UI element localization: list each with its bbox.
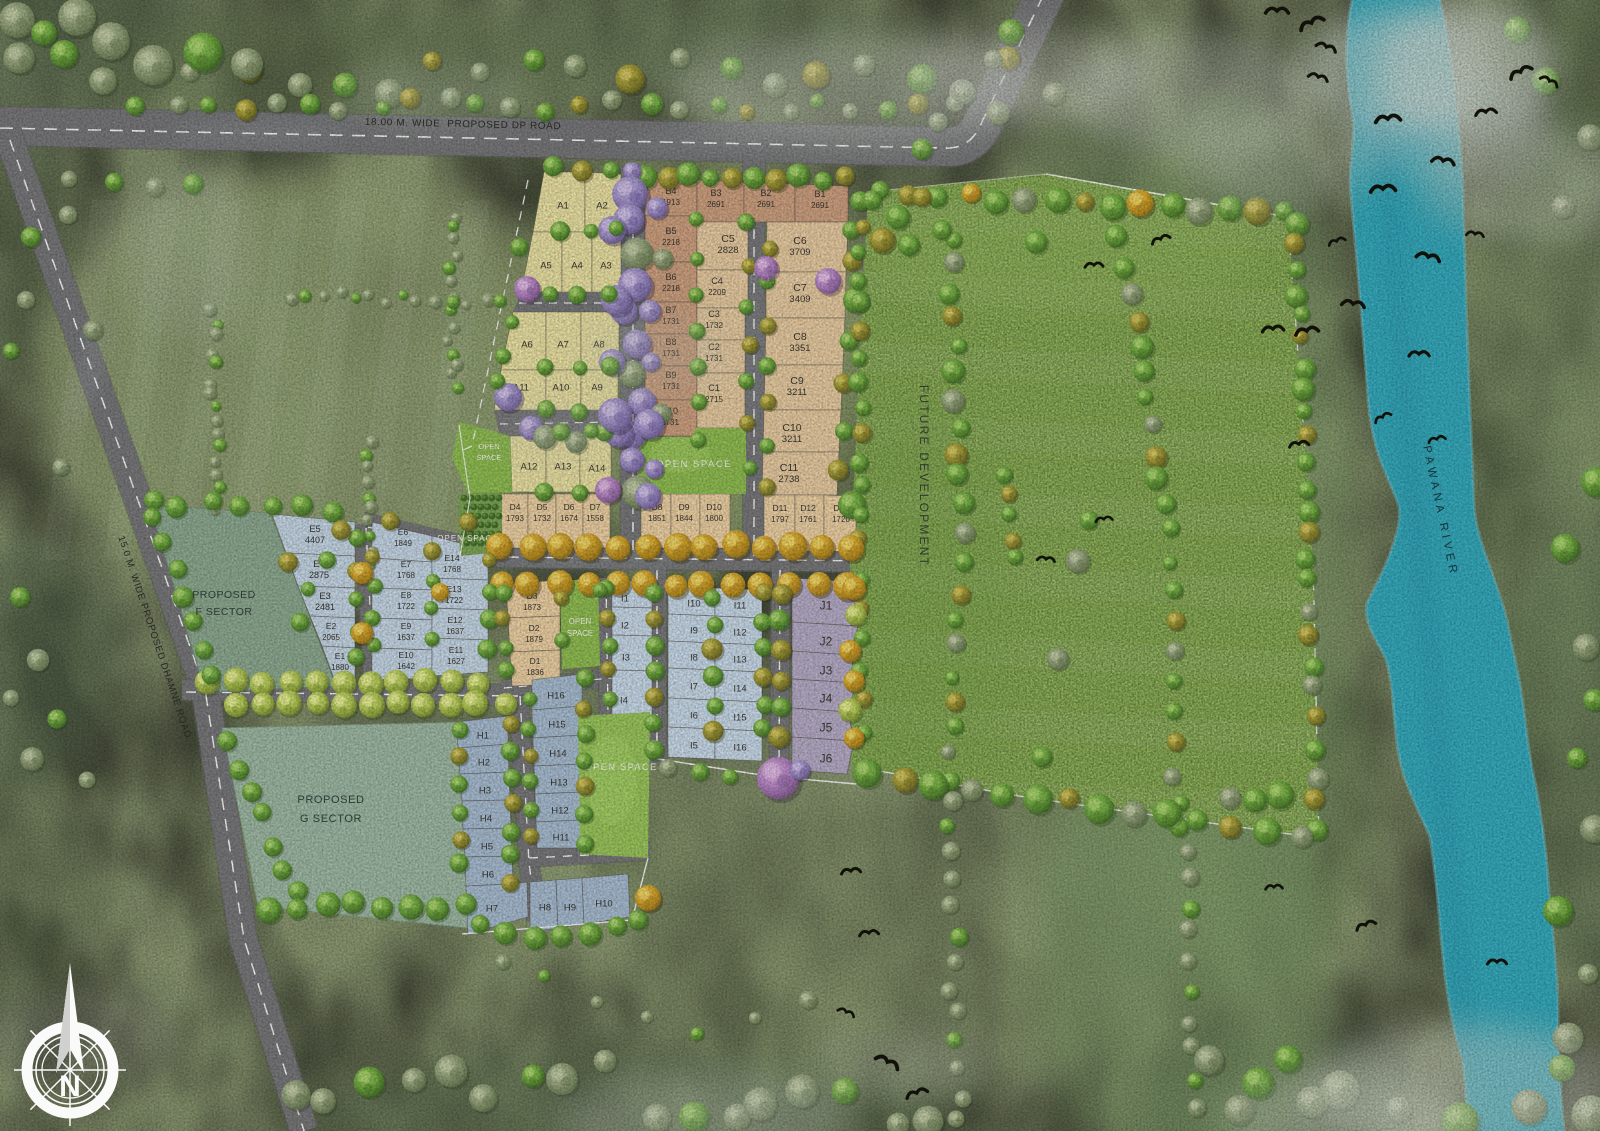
- svg-text:FUTURE DEVELOPMENT: FUTURE DEVELOPMENT: [917, 385, 931, 567]
- svg-text:F SECTOR: F SECTOR: [196, 606, 253, 618]
- svg-text:G SECTOR: G SECTOR: [300, 813, 362, 825]
- svg-text:PROPTIGER: PROPTIGER: [740, 272, 829, 286]
- svg-text:N: N: [59, 1070, 81, 1103]
- svg-text:PROPOSED: PROPOSED: [192, 589, 256, 601]
- svg-text:PROPOSED: PROPOSED: [297, 794, 364, 806]
